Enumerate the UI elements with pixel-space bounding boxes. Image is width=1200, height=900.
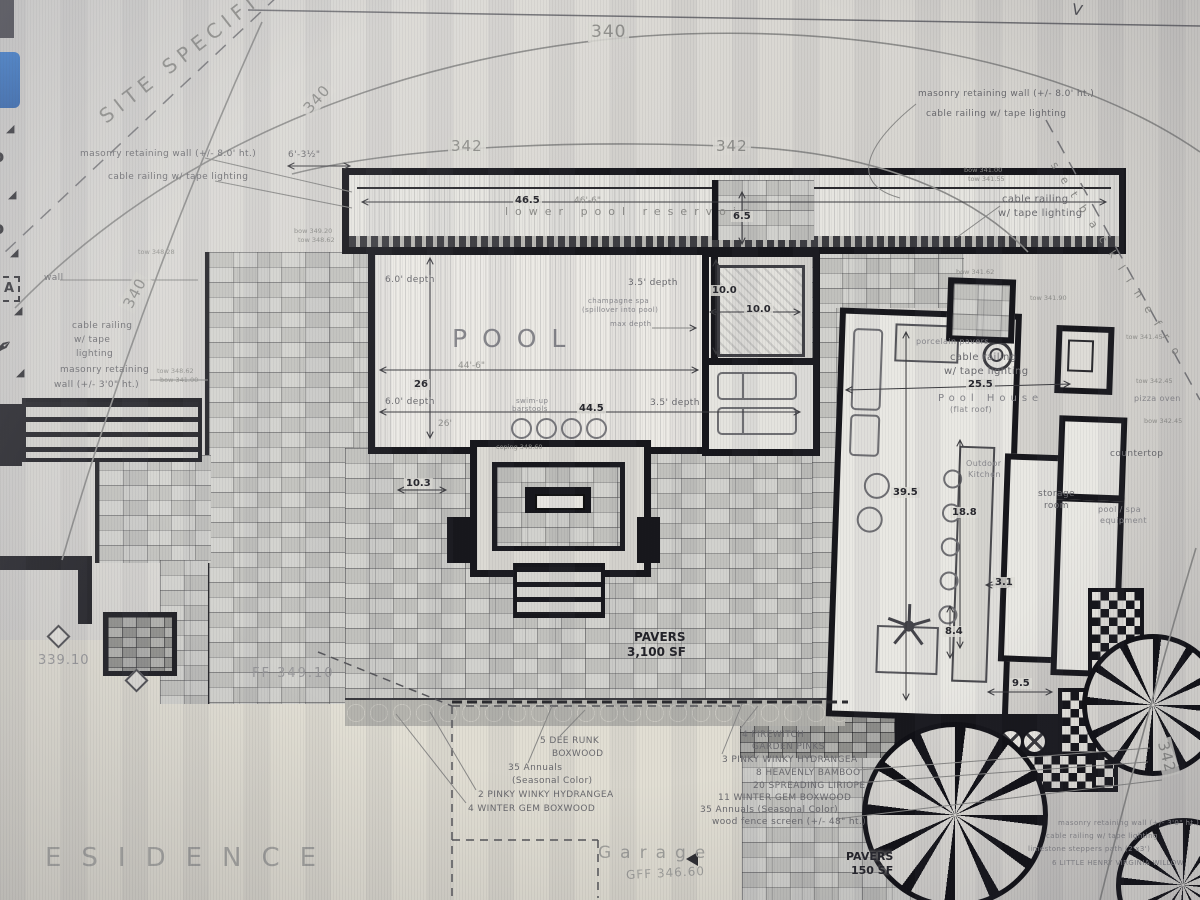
tr-cable2-label-l1: cable railing [1002,194,1069,205]
plant-left-5: 4 WINTER GEM BOXWOOD [468,805,595,815]
champagne-spa-l2: (spillover into pool) [582,307,658,315]
elev-tag-9: tow 341.90 [1030,294,1067,302]
contour-342-right: 342 [713,137,751,155]
linework [0,0,1200,900]
br-cable-railing-label: cable railing w/ tape lighting [1046,833,1158,841]
residence-ff-label: FF 349.10 [252,666,335,681]
tr-cable2-label-l2: w/ tape lighting [998,208,1082,219]
elev-tag-1: bow 349.20 [294,227,332,235]
left-wall-label: wall [44,274,63,284]
depth-deep-a: 3.5' depth [628,279,678,289]
left-masonry-label-l2: wall (+/- 3'0" ht.) [54,381,139,391]
br-steppers-label: limestone steppers path (2'x3') [1028,846,1150,854]
ph-dim-a: 3.1 [993,577,1015,588]
plant-right-7: wood fence screen (+/- 48" ht.) [712,818,866,828]
pool-length-hand: 44'-6" [458,361,485,371]
swimup-label-l2: barstools [512,406,548,414]
plant-right-0: 4 FIREWITCH [742,731,804,741]
ph-cable-label-l1: cable railing [950,352,1017,363]
left-masonry-label-l1: masonry retaining [60,366,149,376]
window-corner [0,0,14,38]
ph-length-dim: 39.5 [891,487,920,498]
undo-tool-icon[interactable]: ɔ [0,146,5,167]
reservoir-dim: 46.5 [513,195,542,206]
elev-tag-7: tow 341.55 [968,175,1005,183]
chevron-corner-icon-4[interactable]: ◢ [14,304,22,317]
tr-masonry-wall-label: masonry retaining wall (+/- 8.0' ht.) [918,90,1094,100]
storage-room-l1: storage [1038,490,1075,500]
ph-cable-label-l2: w/ tape lighting [944,366,1028,377]
plant-left-1: BOXWOOD [552,750,604,760]
plant-left-4: 2 PINKY WINKY HYDRANGEA [478,791,614,801]
contour-340-top: 340 [588,22,629,42]
plant-left-2: 35 Annuals [508,764,562,774]
equipment-l1: pool / spa [1098,506,1141,515]
tl-masonry-wall-label: masonry retaining wall (+/- 8.0' ht.) [80,150,256,160]
pool-width-hand: 26' [438,419,452,429]
left-cable-label-l3: lighting [76,350,113,360]
ph-width-dim: 25.5 [966,379,995,390]
left-cable-label-l1: cable railing [72,322,132,332]
pizza-oven-label: pizza oven [1134,395,1181,404]
max-depth-label: max depth [610,321,651,329]
ph-interior-dim: 18.8 [950,507,979,518]
storage-room-l2: room [1044,502,1069,512]
chevron-corner-icon-3[interactable]: ◢ [10,246,18,259]
porcelain-pavers-label: porcelain pavers [916,338,989,347]
chevron-corner-icon-5[interactable]: ◢ [16,366,24,379]
chevron-corner-icon-2[interactable]: ◢ [8,188,16,201]
plant-left-3: (Seasonal Color) [512,777,592,787]
elev-tag-3: tow 348.28 [138,248,175,256]
offset-dim: 6'-3½" [288,151,320,161]
pool-width-dim: 26 [412,379,430,390]
br-willow-label: 6 LITTLE HENRY VIRGINIA WILLOW [1052,860,1184,868]
textbox-tool-label: A [4,281,14,296]
annotation-tool-button[interactable] [0,52,20,108]
site-plan-photo: SITE SPECIFIC R s e t b a c k l i n e f … [0,0,1200,900]
spa-dim-a: 10.0 [710,285,739,296]
ph-bow1-tag: bow 342.45 [1144,417,1182,425]
depth-shallow-b: 6.0' depth [385,398,435,408]
depth-deep-b: 3.5' depth [650,399,700,409]
pavers-small-label-l2: 150 SF [851,864,893,877]
plant-right-6: 35 Annuals (Seasonal Color) [700,806,838,816]
tl-cable-railing-label: cable railing w/ tape lighting [108,173,248,183]
pavers-main-label-l2: 3,100 SF [627,645,686,659]
ph-tow1-tag: tow 341.45 [1126,333,1163,341]
reservoir-label: lower pool reservoir [505,206,754,218]
pool-title: POOL [452,325,580,353]
plant-right-5: 11 WINTER GEM BOXWOOD [718,794,851,804]
ph-dim-c: 9.5 [1010,678,1032,689]
spot-elevation-label: 339.10 [38,653,90,668]
depth-shallow-a: 6.0' depth [385,276,435,286]
tr-cable-railing-label: cable railing w/ tape lighting [926,110,1066,120]
contour-342-left: 342 [448,137,486,155]
plant-right-2: 3 PINKY WINKY HYDRANGEA [722,756,858,766]
residence-name: ESIDENCE [45,843,336,873]
left-cable-label-l2: w/ tape [74,336,110,346]
elev-tag-5: bow 341.00 [160,376,198,384]
coping-tag: coping 348.60 [496,443,543,451]
garage-name: Garage [598,843,714,863]
br-masonry-wall-label: masonry retaining wall (+/- 3'0" ht.) [1058,820,1199,828]
pool-house-name-l1: Pool House [938,393,1043,404]
champagne-spa-l1: champagne spa [588,298,649,306]
elev-tag-4: tow 348.62 [157,367,194,375]
ph-dim-b: 8.4 [943,626,965,637]
ph-tow2-tag: tow 342.45 [1136,377,1173,385]
outdoor-kitchen-l2: Kitchen [968,471,1001,480]
redo-tool-icon[interactable]: ɔ [0,218,5,239]
outdoor-kitchen-l1: Outdoor [966,460,1001,469]
step-dim: 10.3 [404,478,433,489]
chevron-corner-icon[interactable]: ◢ [6,122,14,135]
plant-right-1: GARDEN PINKS [752,743,825,753]
reservoir-dim-hand: 46'-6" [574,196,601,206]
pool-length-dim: 44.5 [577,403,606,414]
elev-tag-6: bow 341.00 [964,166,1002,174]
pavers-main-label-l1: PAVERS [634,630,686,644]
side-dim: 6.5 [731,211,753,222]
elev-tag-8: bow 341.62 [956,268,994,276]
plant-right-3: 8 HEAVENLY BAMBOO [756,769,860,779]
textbox-tool-button[interactable]: A [0,276,20,302]
countertop-label: countertop [1110,450,1163,460]
plant-right-4: 20 SPREADING LIRIOPE [753,782,865,792]
plant-left-0: 5 DEE RUNK [540,737,599,747]
equipment-l2: equipment [1100,517,1147,526]
pool-house-name-l2: (flat roof) [950,406,992,415]
elev-tag-2: tow 348.62 [298,236,335,244]
spa-dim-b: 10.0 [744,304,773,315]
pavers-small-label-l1: PAVERS [846,850,893,863]
